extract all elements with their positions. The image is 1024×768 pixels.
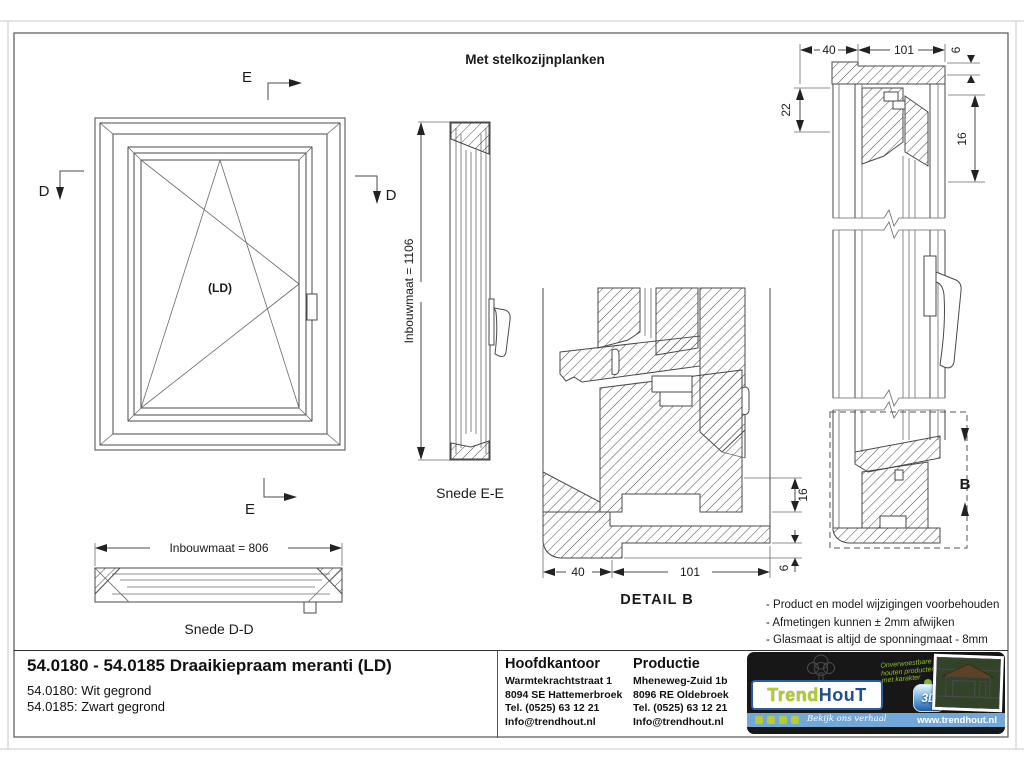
website-url: www.trendhout.nl bbox=[917, 715, 997, 726]
section-marker-e-top: E bbox=[242, 69, 302, 100]
sheet-title: Met stelkozijnplanken bbox=[465, 52, 605, 67]
logo-text-trend: Trend bbox=[767, 685, 819, 706]
hoofdkantoor-phone: Tel. (0525) 63 12 21 bbox=[505, 702, 622, 716]
title-block-divider bbox=[497, 651, 498, 738]
section-marker-d-left: D bbox=[39, 171, 84, 200]
window-handle-front bbox=[307, 294, 317, 320]
dim-inbouwmaat-height: Inbouwmaat = 1106 bbox=[402, 238, 416, 343]
variant-1: 54.0180: Wit gegrond bbox=[27, 683, 392, 699]
marker-d-left-label: D bbox=[39, 183, 50, 200]
product-photo bbox=[932, 654, 1004, 712]
right-vertical-section: B bbox=[830, 84, 971, 548]
hoofdkantoor-heading: Hoofdkantoor bbox=[505, 656, 622, 672]
marker-d-right-label: D bbox=[386, 187, 397, 204]
drawing-notes: - Product en model wijzigingen voorbehou… bbox=[766, 599, 999, 646]
hoofdkantoor-address-1: Warmtekrachtstraat 1 bbox=[505, 675, 622, 689]
drawing-sheet: Met stelkozijnplanken (LD) E E bbox=[0, 0, 1024, 768]
waterslip-profile bbox=[560, 336, 700, 382]
handle-stub-plan bbox=[304, 602, 316, 613]
detail-dim-40: 40 bbox=[571, 565, 585, 579]
productie-heading: Productie bbox=[633, 656, 729, 672]
glazing-clip-right bbox=[742, 387, 749, 414]
hoofdkantoor-email: Info@trendhout.nl bbox=[505, 716, 622, 730]
trendhout-logo: TrendHouT bbox=[751, 680, 883, 710]
stelkozijnplank-top bbox=[832, 62, 945, 84]
hoofdkantoor-block: Hoofdkantoor Warmtekrachtstraat 1 8094 S… bbox=[505, 656, 622, 729]
glazing-clip-left bbox=[612, 349, 619, 374]
title-block: 54.0180 - 54.0185 Draaikiepraam meranti … bbox=[14, 650, 1008, 738]
sheet-border bbox=[14, 33, 1008, 737]
brand-panel: TrendHouT Onverwoestbare houten producte… bbox=[747, 652, 1005, 734]
social-icon-3 bbox=[779, 716, 787, 724]
brand-bottom-bar: Bekijk ons verhaal www.trendhout.nl bbox=[747, 713, 1005, 727]
product-title: 54.0180 - 54.0185 Draaikiepraam meranti … bbox=[27, 656, 392, 676]
detail-dim-6: 6 bbox=[777, 564, 791, 571]
social-icon-1 bbox=[755, 716, 763, 724]
swing-direction-label: (LD) bbox=[208, 281, 232, 295]
tree-icon bbox=[803, 654, 839, 682]
handle-lever-right bbox=[936, 272, 961, 368]
dim-inbouwmaat-width: Inbouwmaat = 806 bbox=[169, 541, 268, 555]
head-dim-16: 16 bbox=[955, 132, 969, 146]
head-dim-40: 40 bbox=[822, 43, 836, 57]
section-marker-e-bottom: E bbox=[245, 478, 297, 518]
marker-e-bottom-label: E bbox=[245, 501, 255, 518]
sill-profile bbox=[543, 512, 770, 558]
note-3: - Glasmaat is altijd de sponningmaat - 8… bbox=[766, 634, 988, 646]
productie-email: Info@trendhout.nl bbox=[633, 716, 729, 730]
variant-2: 54.0185: Zwart gegrond bbox=[27, 699, 392, 715]
hoofdkantoor-address-2: 8094 SE Hattemerbroek bbox=[505, 689, 622, 703]
detail-dim-101: 101 bbox=[680, 565, 700, 579]
head-dim-101: 101 bbox=[894, 43, 914, 57]
note-1: - Product en model wijzigingen voorbehou… bbox=[766, 599, 999, 611]
note-2: - Afmetingen kunnen ± 2mm afwijken bbox=[766, 617, 955, 629]
head-dim-22: 22 bbox=[779, 103, 793, 117]
handle-lever-section bbox=[494, 308, 510, 357]
detail-dim-16: 16 bbox=[796, 488, 810, 502]
detail-b-view: 40 101 16 6 DETAIL B bbox=[543, 288, 810, 608]
handle-plate-section bbox=[489, 299, 494, 345]
productie-address-1: Mheneweg-Zuid 1b bbox=[633, 675, 729, 689]
marker-e-top-label: E bbox=[242, 69, 252, 86]
productie-address-2: 8096 RE Oldebroek bbox=[633, 689, 729, 703]
head-dim-6: 6 bbox=[949, 46, 963, 53]
section-d-d: Inbouwmaat = 806 Snede D-D bbox=[95, 541, 342, 637]
product-info: 54.0180 - 54.0185 Draaikiepraam meranti … bbox=[27, 656, 392, 715]
productie-block: Productie Mheneweg-Zuid 1b 8096 RE Oldeb… bbox=[633, 656, 729, 729]
detail-b-caption: DETAIL B bbox=[620, 592, 694, 608]
marker-b-label: B bbox=[960, 476, 971, 493]
logo-text-hout: HouT bbox=[819, 685, 867, 706]
social-icon-4 bbox=[791, 716, 799, 724]
front-elevation: (LD) bbox=[95, 118, 345, 450]
section-e-e-caption: Snede E-E bbox=[436, 485, 504, 501]
section-marker-d-right: D bbox=[355, 176, 397, 204]
section-d-d-caption: Snede D-D bbox=[184, 621, 253, 637]
section-e-e: Inbouwmaat = 1106 Snede E-E bbox=[402, 122, 510, 501]
handle-plate-right bbox=[924, 256, 936, 316]
productie-phone: Tel. (0525) 63 12 21 bbox=[633, 702, 729, 716]
social-cta: Bekijk ons verhaal bbox=[807, 714, 887, 724]
social-icon-2 bbox=[767, 716, 775, 724]
